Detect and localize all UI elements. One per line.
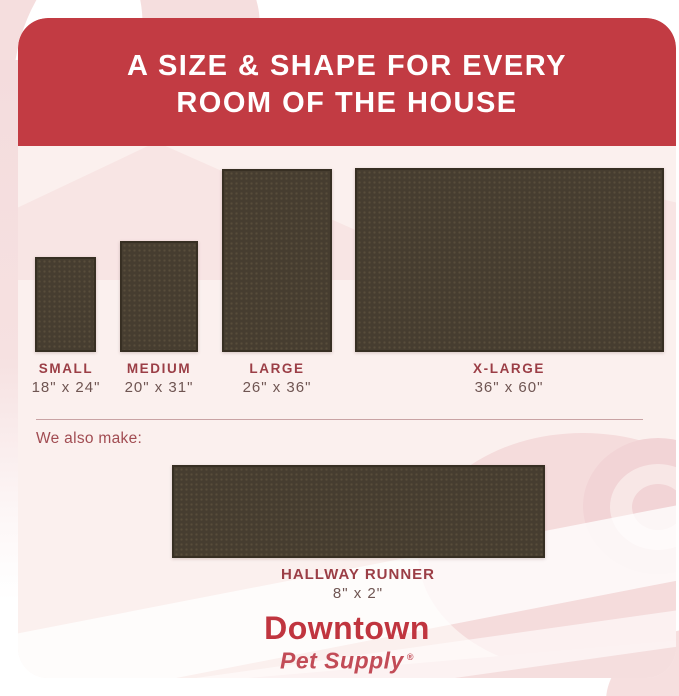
size-dimensions: 36" x 60" (473, 378, 545, 397)
infographic-card: A SIZE & SHAPE FOR EVERY ROOM OF THE HOU… (18, 18, 676, 678)
size-dimensions: 8" x 2" (281, 584, 435, 603)
mat-small (35, 257, 96, 352)
swirl-core (632, 484, 676, 530)
size-dimensions: 26" x 36" (243, 378, 312, 397)
label-large: LARGE 26" x 36" (243, 360, 312, 397)
label-small: SMALL 18" x 24" (32, 360, 101, 397)
size-name: SMALL (32, 360, 101, 377)
registered-trademark-icon: ® (407, 652, 414, 662)
mat-medium (120, 241, 198, 352)
label-medium: MEDIUM 20" x 31" (125, 360, 194, 397)
mat-large (222, 169, 332, 352)
size-name: LARGE (243, 360, 312, 377)
title-line-2: ROOM OF THE HOUSE (176, 85, 517, 122)
brand-logo: Downtown Pet Supply® (18, 612, 676, 674)
title-line-1: A SIZE & SHAPE FOR EVERY (127, 48, 567, 85)
label-x-large: X-LARGE 36" x 60" (473, 360, 545, 397)
swirl-middle-ring (610, 464, 676, 550)
size-dimensions: 18" x 24" (32, 378, 101, 397)
section-divider (36, 419, 643, 420)
mat-x-large (355, 168, 664, 352)
brand-subtitle: Pet Supply® (18, 644, 676, 674)
brand-name: Downtown (18, 612, 676, 644)
also-make-note: We also make: (36, 430, 142, 448)
swirl-outer-ring (583, 438, 676, 574)
size-name: HALLWAY RUNNER (281, 566, 435, 583)
mat-hallway-runner (172, 465, 545, 558)
size-dimensions: 20" x 31" (125, 378, 194, 397)
size-name: X-LARGE (473, 360, 545, 377)
size-name: MEDIUM (125, 360, 194, 377)
brand-subtitle-text: Pet Supply (280, 648, 404, 674)
background-left-strip (0, 60, 18, 600)
title-banner: A SIZE & SHAPE FOR EVERY ROOM OF THE HOU… (18, 18, 676, 146)
label-hallway-runner: HALLWAY RUNNER 8" x 2" (281, 566, 435, 603)
